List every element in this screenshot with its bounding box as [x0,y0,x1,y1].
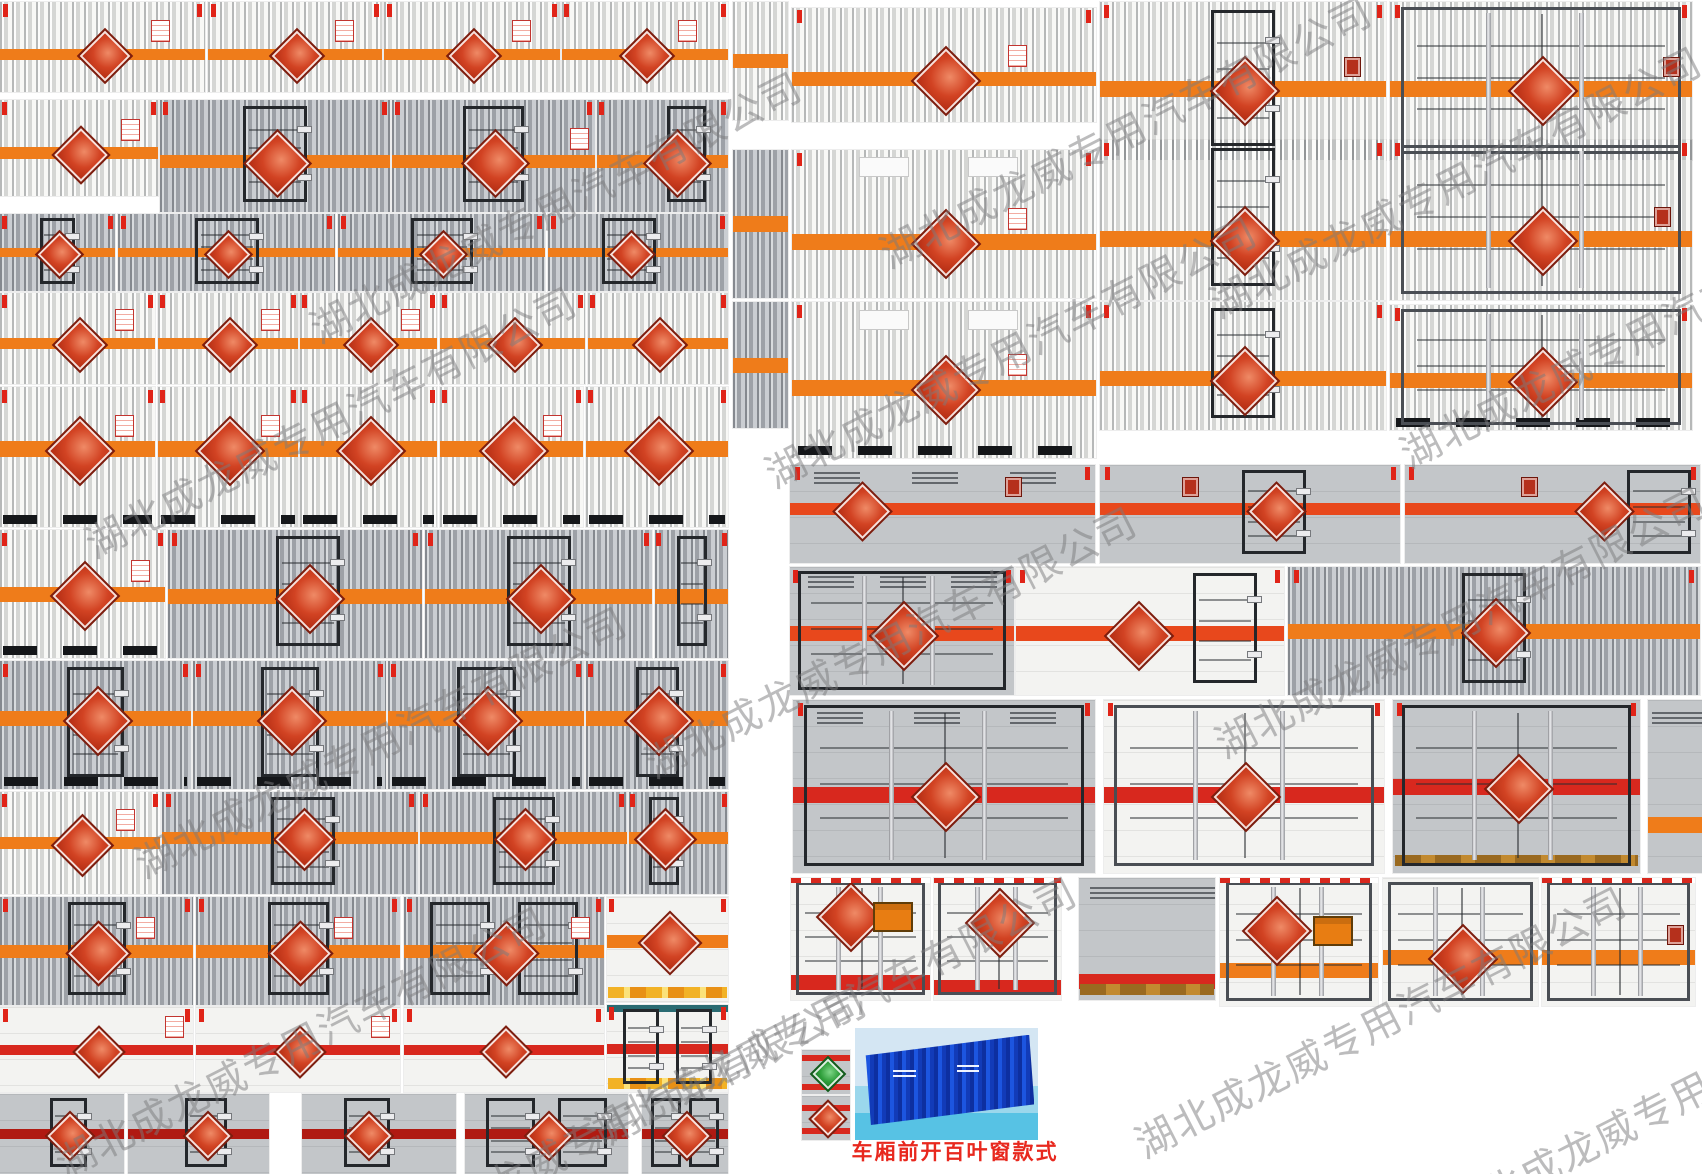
tail-lamp-icon [302,390,307,403]
flame-diamond-icon [832,481,893,542]
flame-diamond-icon [336,416,407,487]
rear-door-hinge-bar [1486,151,1491,288]
truck-box-photo [607,897,728,1002]
tail-lamp-icon [1395,5,1400,18]
reflective-band [608,987,727,998]
truck-box-photo [118,214,335,291]
truck-box-photo [300,387,437,527]
flame-diamond-icon [51,125,110,184]
tail-lamp-icon [552,4,557,17]
door-hinge [309,690,324,697]
flame-diamond-icon [51,814,115,878]
cargo-door-frame [676,1009,712,1084]
truck-box-photo [1079,878,1215,1000]
rear-door-hinge-bar [1486,314,1491,420]
orange-rectangle-placard [1313,916,1353,946]
truck-box-photo [384,2,560,92]
door-crossbar [1217,180,1269,182]
flame-diamond-icon [195,416,266,487]
tail-lamp-icon [1689,570,1694,583]
tail-lamp-icon [1691,467,1696,480]
truck-box-photo [0,214,115,291]
truck-box-photo [392,100,595,212]
truck-box-photo [1542,878,1695,1006]
door-hinge [1296,530,1311,537]
tail-lamp-icon [795,467,800,480]
truck-box-photo [300,293,437,384]
truck-box-photo [733,2,788,120]
tail-lamp-icon [619,794,624,807]
door-hinge [669,745,684,752]
door-hinge [702,1026,717,1033]
container-photo [855,1028,1038,1140]
tail-lamp-icon [588,390,593,403]
placard-icon [512,20,531,42]
tail-lamp-icon [185,899,190,912]
truck-box-photo [465,1094,628,1174]
placard-icon [335,20,354,42]
tail-lamp-icon [720,216,725,229]
door-hinge [568,968,583,975]
tail-lamp-icon [121,216,126,229]
tail-lamp-icon [108,216,113,229]
truck-box-photo [338,214,545,291]
tail-lamp-icon [722,794,727,807]
tail-lamp-icon [721,102,726,115]
tail-lamp-icon [1006,570,1011,583]
tail-lamp-icon [590,295,595,308]
tail-lamp-icon [387,4,392,17]
flame-diamond-icon [911,46,982,117]
truck-box-photo [1100,2,1386,160]
door-hinge [525,1113,540,1120]
placard-icon [1008,354,1027,376]
hazard-stripe [1648,817,1702,833]
door-hinge [463,233,478,240]
tail-lamp-icon [721,4,726,17]
truck-box-photo [162,792,418,894]
rear-door-hinge-bar [982,711,987,860]
door-hinge [1247,651,1262,658]
tail-lamp-icon [199,1009,204,1022]
door-hinge [697,614,712,621]
tail-lamp-icon [1104,143,1109,156]
truck-box-photo [1288,567,1700,695]
truck-box-photo [160,100,390,212]
flame-placard-icon [1654,207,1671,227]
placard-icon [115,415,134,437]
truck-box-photo [0,530,165,658]
door-crossbar [1633,535,1685,537]
door-hinge [463,266,478,273]
tail-lamp-icon [2,533,7,546]
louver-vent-icon [957,1065,979,1074]
flame-diamond-icon [269,28,326,85]
door-hinge [1247,596,1262,603]
truck-box-photo [425,530,652,658]
truck-box-photo [168,530,422,658]
truck-box-photo [642,1094,728,1174]
truck-box-photo [733,302,788,428]
tail-lamp-icon [721,899,726,912]
tail-lamp-icon [153,794,158,807]
truck-box-photo [1390,2,1692,160]
tail-lamp-icon [183,664,188,677]
tail-lamp-icon [148,390,153,403]
truck-box-photo [790,465,1095,563]
tail-lamp-icon [166,794,171,807]
tail-lamp-icon [2,216,7,229]
tail-lamp-icon [1391,467,1396,480]
door-hinge [709,1113,724,1120]
tail-lamp-icon [3,1009,8,1022]
tail-lamp-icon [391,664,396,677]
tail-lamp-icon [392,1009,397,1022]
tail-lamp-icon [3,4,8,17]
truck-box-photo [588,293,728,384]
truck-box-photo [790,567,1014,695]
placard-icon [570,128,589,150]
door-hinge [1265,176,1280,183]
tail-lamp-icon [374,4,379,17]
tail-lamp-icon [196,664,201,677]
underbody-skirt [3,515,152,524]
door-hinge [545,860,560,867]
placard-icon [1008,45,1027,67]
placard-icon [151,20,170,42]
truck-box-photo [0,1007,193,1092]
truck-box-photo [0,2,205,92]
truck-box-photo [1390,305,1692,430]
door-hinge [325,816,340,823]
tail-lamp-icon [656,533,661,546]
truck-box-photo [193,661,386,789]
door-crossbar [524,975,573,977]
door-hinge [330,559,345,566]
door-hinge [1516,596,1531,603]
tail-lamp-icon [407,1009,412,1022]
truck-box-photo [404,897,604,1005]
top-panel-patch [968,157,1018,177]
hazard-stripe [733,216,788,232]
tail-lamp-icon [721,664,726,677]
tail-lamp-icon [721,295,726,308]
tail-lamp-icon [587,102,592,115]
green-placard-photo [802,1050,850,1094]
tail-lamp-icon [302,295,307,308]
door-hinge [669,690,684,697]
cargo-door-frame [1627,470,1691,554]
truck-box-photo [158,293,298,384]
door-crossbar [681,603,703,605]
truck-box-photo [655,530,728,658]
tail-lamp-icon [1395,308,1400,321]
tail-lamp-icon [797,10,802,23]
hazard-stripe [733,54,788,68]
truck-box-photo [1104,700,1384,873]
door-crossbar [436,959,485,961]
truck-box-photo [1100,302,1386,430]
tail-lamp-icon [644,533,649,546]
door-crossbar [1633,521,1685,523]
flame-placard-icon [1005,477,1022,497]
truck-box-photo [0,792,160,894]
door-crossbar [524,924,573,926]
truck-box-photo [1390,140,1692,300]
truck-box-photo [420,792,627,894]
tail-lamp-icon [1377,305,1382,318]
bumper-dash-strip [934,878,1061,883]
flame-diamond-icon [637,910,702,975]
door-crossbar [1217,334,1269,336]
tail-lamp-icon [609,899,614,912]
tail-lamp-icon [160,295,165,308]
door-hinge [709,1148,724,1155]
tail-lamp-icon [3,664,8,677]
underbody-skirt [4,777,187,786]
hazard-stripe [733,358,788,373]
placard-icon [165,1016,184,1038]
truck-box-photo [404,1007,604,1092]
door-hinge [597,1113,612,1120]
door-crossbar [681,583,703,585]
placard-icon [1008,208,1027,230]
placard-icon [261,415,280,437]
door-crossbar [1199,659,1251,661]
flame-diamond-icon [632,317,689,374]
flame-placard-icon [1344,57,1361,77]
tail-lamp-icon [409,794,414,807]
door-crossbar [1199,640,1251,642]
blue-container-box [862,1035,1034,1129]
truck-box-photo [0,897,193,1005]
door-hinge [1265,331,1280,338]
door-hinge [646,266,661,273]
door-hinge [330,614,345,621]
placard-icon [261,309,280,331]
door-hinge [249,233,264,240]
door-hinge [561,559,576,566]
tail-lamp-icon [442,390,447,403]
tail-lamp-icon [151,102,156,115]
rear-door-hinge-bar [1579,314,1584,420]
tail-lamp-icon [1086,305,1091,318]
flame-placard-icon [1521,477,1538,497]
door-hinge [297,126,312,133]
truck-box-photo [1405,465,1700,563]
vent-slots [1090,887,1136,900]
tail-lamp-icon [1105,467,1110,480]
door-hinge [597,1148,612,1155]
door-hinge [649,1063,664,1070]
tail-lamp-icon [1086,153,1091,166]
louver-vent-icon [893,1070,915,1079]
tail-lamp-icon [551,216,556,229]
door-crossbar [524,942,573,944]
rear-door-hinge-bar [1433,887,1438,996]
flame-diamond-icon [634,808,698,872]
truck-box-photo [440,387,583,527]
placard-icon [371,1016,390,1038]
door-hinge [561,614,576,621]
tail-lamp-icon [798,703,803,716]
tail-lamp-icon [576,390,581,403]
underbody-skirt [303,515,435,524]
flame-diamond-icon [446,28,503,85]
flame-diamond-icon [1574,481,1635,542]
truck-box-photo-collage: 车厢前开百叶窗款式 湖北成龙威专用汽车有限公司湖北成龙威专用汽车有限公司湖北成龙… [0,0,1702,1174]
tail-lamp-icon [2,295,7,308]
tail-lamp-icon [185,1009,190,1022]
placard-icon [136,917,155,939]
door-hinge [217,1113,232,1120]
flame-diamond-icon [487,317,544,374]
tail-lamp-icon [1409,467,1414,480]
door-hinge [319,968,334,975]
truck-box-photo [1016,567,1284,695]
door-hinge [545,816,560,823]
tail-lamp-icon [596,1009,601,1022]
placard-icon [121,119,140,141]
caption-text: 车厢前开百叶窗款式 [845,1136,1065,1166]
tail-lamp-icon [1085,467,1090,480]
tail-lamp-icon [199,899,204,912]
flame-placard-icon [1667,925,1684,945]
flame-diamond-icon [911,209,982,280]
cargo-door-frame [623,1009,659,1084]
truck-box-photo [792,8,1096,122]
door-hinge [114,745,129,752]
truck-box-photo [586,661,728,789]
door-hinge [325,860,340,867]
truck-box-photo [440,293,585,384]
door-crossbar [436,975,485,977]
tail-lamp-icon [327,216,332,229]
tail-lamp-icon [442,295,447,308]
door-crossbar [491,1127,530,1129]
truck-box-photo [0,100,158,196]
vent-slots [1177,887,1215,900]
tail-lamp-icon [1085,703,1090,716]
tail-lamp-icon [1377,5,1382,18]
truck-box-photo [128,1094,269,1174]
underbody-skirt [589,777,725,786]
flame-diamond-icon [45,416,116,487]
tail-lamp-icon [1395,143,1400,156]
door-crossbar [1633,490,1685,492]
door-hinge [319,922,334,929]
door-crossbar [1217,42,1269,44]
door-hinge [514,126,529,133]
bumper-dash-strip [791,878,930,883]
tail-lamp-icon [1631,703,1636,716]
tail-lamp-icon [392,899,397,912]
truck-box-photo [208,2,382,92]
flame-diamond-icon [911,355,982,426]
underbody-skirt [798,446,1090,455]
cargo-door-frame [677,536,707,646]
tail-lamp-icon [2,390,7,403]
door-hinge [114,690,129,697]
tail-lamp-icon [148,295,153,308]
flame-placard-icon [1182,477,1199,497]
tail-lamp-icon [793,570,798,583]
bumper-dash-strip [1220,878,1378,883]
door-hinge [649,1026,664,1033]
truck-box-photo [158,387,298,527]
door-hinge [697,559,712,566]
flame-diamond-icon [72,1025,126,1079]
truck-box-photo [791,878,930,1000]
tail-lamp-icon [291,390,296,403]
truck-box-photo [1383,878,1538,1006]
flame-diamond-icon [624,416,695,487]
door-hinge [480,922,495,929]
tail-lamp-icon [1682,143,1687,156]
flame-diamond-icon [1104,601,1175,672]
tail-lamp-icon [797,153,802,166]
flame-diamond-icon [343,317,400,374]
door-hinge [1516,651,1531,658]
tail-lamp-icon [1275,570,1280,583]
tail-lamp-icon [378,664,383,677]
tail-lamp-icon [211,4,216,17]
truck-box-photo [196,897,400,1005]
top-panel-patch [859,310,909,330]
tail-lamp-icon [1375,703,1380,716]
tail-lamp-icon [576,664,581,677]
door-hinge [1265,37,1280,44]
tail-lamp-icon [588,664,593,677]
placard-icon [115,309,134,331]
cargo-door-frame [1193,573,1257,683]
flame-diamond-icon [202,317,259,374]
truck-box-photo [196,1007,400,1092]
door-hinge [249,266,264,273]
flame-diamond-icon [52,317,109,374]
rear-door-hinge-bar [1579,151,1584,288]
tail-lamp-icon [160,390,165,403]
tail-lamp-icon [721,390,726,403]
tail-lamp-icon [630,794,635,807]
truck-box-photo [597,100,728,212]
truck-box-photo [0,661,191,789]
tail-lamp-icon [1108,703,1113,716]
tail-lamp-icon [1104,5,1109,18]
truck-box-photo [0,1094,124,1174]
door-crossbar [681,1041,708,1043]
truck-box-photo [792,302,1096,458]
truck-box-photo [934,878,1061,1000]
truck-box-photo [302,1094,456,1174]
tail-lamp-icon [341,216,346,229]
truck-box-photo [607,1005,728,1092]
tail-lamp-icon [2,794,7,807]
tail-lamp-icon [3,899,8,912]
door-hinge [380,1113,395,1120]
truck-box-photo [0,387,155,527]
tail-lamp-icon [158,533,163,546]
underbody-skirt [589,515,725,524]
top-panel-patch [859,157,909,177]
tail-lamp-icon [428,533,433,546]
rear-door-hinge-bar [1193,711,1198,860]
door-crossbar [282,562,334,564]
tail-lamp-icon [578,295,583,308]
truck-box-photo [629,792,728,894]
tail-lamp-icon [722,533,727,546]
tail-lamp-icon [1104,305,1109,318]
